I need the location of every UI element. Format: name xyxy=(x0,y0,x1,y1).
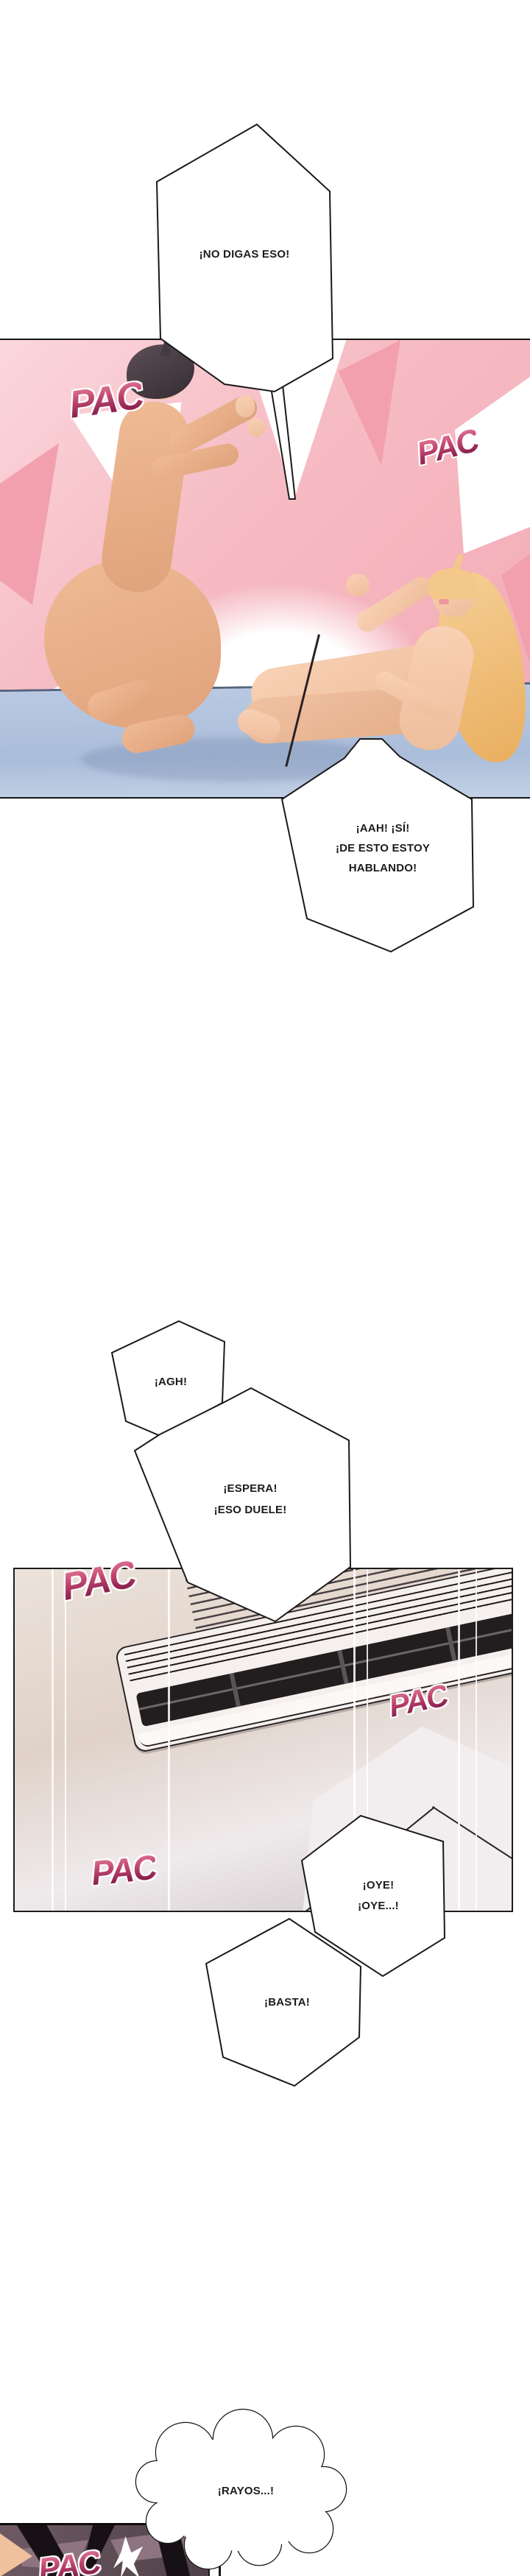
female-fist xyxy=(346,574,370,596)
bubble-line: ¡OYE...! xyxy=(319,1896,437,1917)
speed-line xyxy=(52,1569,54,1911)
webtoon-page: PAC PAC PAC PAC PAC xyxy=(0,0,530,2576)
sfx-pac: PAC xyxy=(67,376,145,424)
speed-line xyxy=(367,1569,368,1911)
panel-air-conditioner xyxy=(13,1568,513,1912)
male-hand xyxy=(236,395,255,417)
bubble-text-oye: ¡OYE! ¡OYE...! xyxy=(319,1875,437,1917)
female-blush xyxy=(439,599,449,604)
bubble-text-agh: ¡AGH! xyxy=(130,1372,211,1392)
bubble-line: HABLANDO! xyxy=(317,858,449,878)
bubble-line: ¡ESPERA! xyxy=(184,1478,317,1499)
bubble-text-aah-si: ¡AAH! ¡SÍ! ¡DE ESTO ESTOY HABLANDO! xyxy=(317,818,449,878)
bubble-line: ¡ESO DUELE! xyxy=(184,1499,317,1521)
speed-line xyxy=(458,1569,460,1911)
speed-line xyxy=(65,1569,66,1911)
bubble-line: ¡DE ESTO ESTOY xyxy=(317,838,449,858)
bubble-line: ¡OYE! xyxy=(319,1875,437,1896)
sfx-pac: PAC xyxy=(90,1850,158,1891)
bubble-text-no-digas: ¡NO DIGAS ESO! xyxy=(178,244,311,264)
bubble-text-basta: ¡BASTA! xyxy=(228,1992,346,2012)
panel-dark-closeup: PAC xyxy=(0,2523,221,2576)
bubble-text-rayos: ¡RAYOS...! xyxy=(180,2481,312,2501)
speed-line xyxy=(353,1569,356,1911)
bubble-text-espera: ¡ESPERA! ¡ESO DUELE! xyxy=(184,1478,317,1521)
speed-line xyxy=(168,1569,170,1911)
speed-line xyxy=(476,1569,477,1911)
sfx-pac-partial: PAC xyxy=(36,2546,102,2576)
bubble-line: ¡AAH! ¡SÍ! xyxy=(317,818,449,838)
male-hand xyxy=(247,418,265,437)
pink-ray xyxy=(0,443,59,605)
white-ray xyxy=(442,377,530,553)
